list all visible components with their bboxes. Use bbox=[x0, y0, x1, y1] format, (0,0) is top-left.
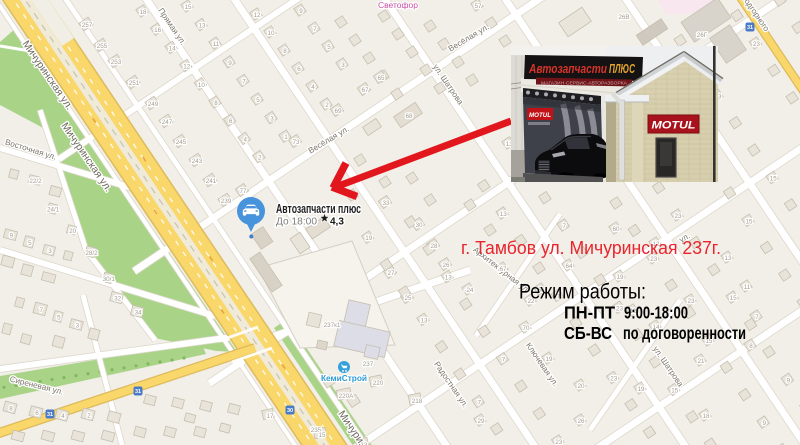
svg-text:70: 70 bbox=[522, 325, 530, 332]
svg-text:14: 14 bbox=[169, 45, 177, 52]
svg-text:7: 7 bbox=[477, 400, 481, 407]
svg-text:29: 29 bbox=[477, 418, 485, 425]
svg-text:по договоренности: по договоренности bbox=[623, 323, 746, 343]
svg-text:4: 4 bbox=[311, 84, 315, 91]
svg-text:3: 3 bbox=[341, 62, 345, 69]
svg-text:7: 7 bbox=[242, 78, 246, 85]
svg-text:26Г: 26Г bbox=[697, 32, 708, 39]
svg-text:13: 13 bbox=[198, 23, 206, 30]
svg-text:4: 4 bbox=[243, 136, 247, 143]
svg-text:220А: 220А bbox=[339, 393, 355, 400]
svg-text:60: 60 bbox=[612, 226, 620, 233]
svg-text:22/2: 22/2 bbox=[29, 178, 42, 185]
svg-text:247: 247 bbox=[162, 119, 173, 126]
svg-text:13: 13 bbox=[445, 275, 453, 282]
svg-text:2: 2 bbox=[87, 412, 91, 419]
svg-text:9:00-18:00: 9:00-18:00 bbox=[624, 303, 688, 323]
svg-text:31: 31 bbox=[747, 25, 753, 31]
svg-text:18: 18 bbox=[139, 9, 147, 16]
svg-text:26: 26 bbox=[577, 418, 585, 425]
svg-text:28: 28 bbox=[430, 243, 438, 250]
svg-text:23: 23 bbox=[555, 439, 563, 445]
svg-text:1: 1 bbox=[284, 134, 288, 141]
svg-text:19: 19 bbox=[365, 235, 373, 242]
svg-text:26: 26 bbox=[442, 262, 450, 269]
svg-text:МАГАЗИН·СЕРВИС·АВТОРАЗБОРКА: МАГАЗИН·СЕРВИС·АВТОРАЗБОРКА bbox=[541, 81, 627, 86]
svg-text:239: 239 bbox=[221, 198, 232, 205]
svg-text:6: 6 bbox=[35, 410, 39, 417]
svg-text:10: 10 bbox=[267, 30, 275, 37]
svg-text:Светофор: Светофор bbox=[378, 0, 418, 10]
svg-text:257: 257 bbox=[82, 22, 93, 29]
svg-text:57: 57 bbox=[474, 3, 482, 10]
svg-text:2: 2 bbox=[325, 102, 329, 109]
svg-text:8: 8 bbox=[283, 48, 287, 55]
svg-text:19: 19 bbox=[637, 386, 645, 393]
svg-text:243: 243 bbox=[192, 158, 203, 165]
svg-text:237к1: 237к1 bbox=[324, 322, 341, 329]
svg-text:26В: 26В bbox=[618, 14, 629, 21]
svg-text:СБ-ВС: СБ-ВС bbox=[564, 323, 612, 343]
svg-text:25: 25 bbox=[404, 295, 412, 302]
svg-text:12: 12 bbox=[253, 12, 261, 19]
svg-text:68: 68 bbox=[405, 113, 413, 120]
svg-text:7: 7 bbox=[563, 223, 567, 230]
svg-text:73: 73 bbox=[292, 139, 300, 146]
svg-text:5: 5 bbox=[57, 315, 61, 322]
svg-text:3: 3 bbox=[270, 116, 274, 123]
svg-text:До 18:00: До 18:00 bbox=[276, 217, 317, 228]
svg-text:9: 9 bbox=[10, 233, 14, 240]
svg-text:Автозапчасти плюс: Автозапчасти плюс bbox=[276, 202, 361, 216]
svg-text:Режим работы:: Режим работы: bbox=[519, 281, 646, 304]
svg-text:245: 245 bbox=[176, 139, 187, 146]
svg-text:4,3: 4,3 bbox=[330, 217, 344, 228]
svg-text:28/2: 28/2 bbox=[85, 250, 98, 257]
svg-text:7: 7 bbox=[755, 314, 759, 321]
svg-text:27: 27 bbox=[387, 270, 395, 277]
svg-text:31: 31 bbox=[135, 389, 141, 395]
svg-text:69: 69 bbox=[334, 108, 342, 115]
svg-text:64: 64 bbox=[565, 263, 573, 270]
svg-text:15: 15 bbox=[730, 295, 738, 302]
svg-text:7: 7 bbox=[313, 26, 317, 33]
svg-text:23: 23 bbox=[610, 376, 618, 383]
svg-text:г. Тамбов ул. Мичуринская 237г: г. Тамбов ул. Мичуринская 237г. bbox=[461, 237, 721, 258]
svg-text:13: 13 bbox=[500, 211, 508, 218]
svg-text:6: 6 bbox=[229, 118, 233, 125]
svg-text:220: 220 bbox=[373, 380, 384, 387]
svg-text:5: 5 bbox=[256, 97, 260, 104]
svg-text:30/1: 30/1 bbox=[103, 276, 116, 283]
svg-text:11: 11 bbox=[213, 41, 220, 48]
svg-text:8: 8 bbox=[214, 100, 218, 107]
svg-text:9: 9 bbox=[762, 420, 766, 427]
svg-text:5: 5 bbox=[327, 44, 331, 51]
svg-text:16: 16 bbox=[154, 27, 162, 34]
svg-text:-24: -24 bbox=[464, 287, 474, 294]
svg-text:241: 241 bbox=[206, 178, 217, 185]
svg-text:65: 65 bbox=[377, 75, 385, 82]
svg-text:20: 20 bbox=[577, 383, 585, 390]
svg-text:15: 15 bbox=[318, 432, 326, 439]
svg-text:237: 237 bbox=[363, 361, 374, 368]
svg-text:249: 249 bbox=[148, 101, 159, 108]
svg-text:20: 20 bbox=[69, 228, 77, 235]
svg-text:8: 8 bbox=[9, 405, 13, 412]
svg-text:10: 10 bbox=[198, 82, 206, 89]
svg-text:13: 13 bbox=[724, 255, 732, 262]
svg-text:15: 15 bbox=[184, 4, 192, 11]
svg-text:32: 32 bbox=[114, 296, 122, 303]
svg-text:8: 8 bbox=[749, 343, 753, 350]
svg-text:3: 3 bbox=[48, 248, 52, 255]
svg-text:ПЛЮС: ПЛЮС bbox=[609, 62, 636, 76]
svg-text:Автозапчасти: Автозапчасти bbox=[528, 61, 607, 76]
svg-text:67: 67 bbox=[361, 87, 369, 94]
svg-text:КемиСтрой: КемиСтрой bbox=[321, 373, 367, 383]
svg-text:9: 9 bbox=[787, 377, 791, 384]
svg-text:5: 5 bbox=[28, 240, 32, 247]
svg-text:33: 33 bbox=[382, 200, 390, 207]
svg-text:MOTUL: MOTUL bbox=[529, 112, 551, 119]
svg-text:17: 17 bbox=[266, 413, 274, 420]
svg-text:4: 4 bbox=[61, 413, 65, 420]
svg-text:7: 7 bbox=[39, 307, 43, 314]
svg-text:3: 3 bbox=[76, 323, 80, 330]
svg-text:24/1: 24/1 bbox=[47, 207, 60, 214]
svg-text:23: 23 bbox=[687, 298, 695, 305]
svg-text:ПН-ПТ: ПН-ПТ bbox=[564, 303, 615, 323]
svg-text:23: 23 bbox=[674, 213, 682, 220]
svg-text:7: 7 bbox=[502, 357, 506, 364]
svg-text:13: 13 bbox=[420, 317, 428, 324]
svg-text:18: 18 bbox=[702, 413, 710, 420]
svg-text:19: 19 bbox=[545, 356, 553, 363]
svg-text:2: 2 bbox=[258, 155, 262, 162]
svg-text:30: 30 bbox=[415, 222, 423, 229]
svg-text:255: 255 bbox=[97, 43, 108, 50]
svg-text:31: 31 bbox=[47, 412, 53, 418]
svg-text:9: 9 bbox=[299, 8, 303, 15]
svg-text:15: 15 bbox=[671, 387, 679, 394]
svg-text:253: 253 bbox=[111, 59, 122, 66]
svg-text:23: 23 bbox=[616, 305, 624, 312]
svg-text:77: 77 bbox=[239, 188, 247, 195]
svg-text:34: 34 bbox=[135, 309, 143, 316]
svg-text:12: 12 bbox=[183, 64, 191, 71]
svg-text:67: 67 bbox=[499, 266, 507, 273]
svg-text:21: 21 bbox=[697, 358, 705, 365]
svg-text:218: 218 bbox=[412, 398, 423, 405]
svg-text:30: 30 bbox=[287, 408, 293, 414]
svg-text:23: 23 bbox=[753, 41, 761, 48]
svg-text:9: 9 bbox=[228, 60, 232, 67]
svg-text:MOTUL: MOTUL bbox=[652, 120, 696, 132]
svg-text:15: 15 bbox=[745, 218, 753, 225]
svg-text:6: 6 bbox=[297, 66, 301, 73]
svg-text:251: 251 bbox=[129, 80, 140, 87]
svg-text:11: 11 bbox=[744, 284, 751, 291]
svg-text:15: 15 bbox=[770, 175, 778, 182]
